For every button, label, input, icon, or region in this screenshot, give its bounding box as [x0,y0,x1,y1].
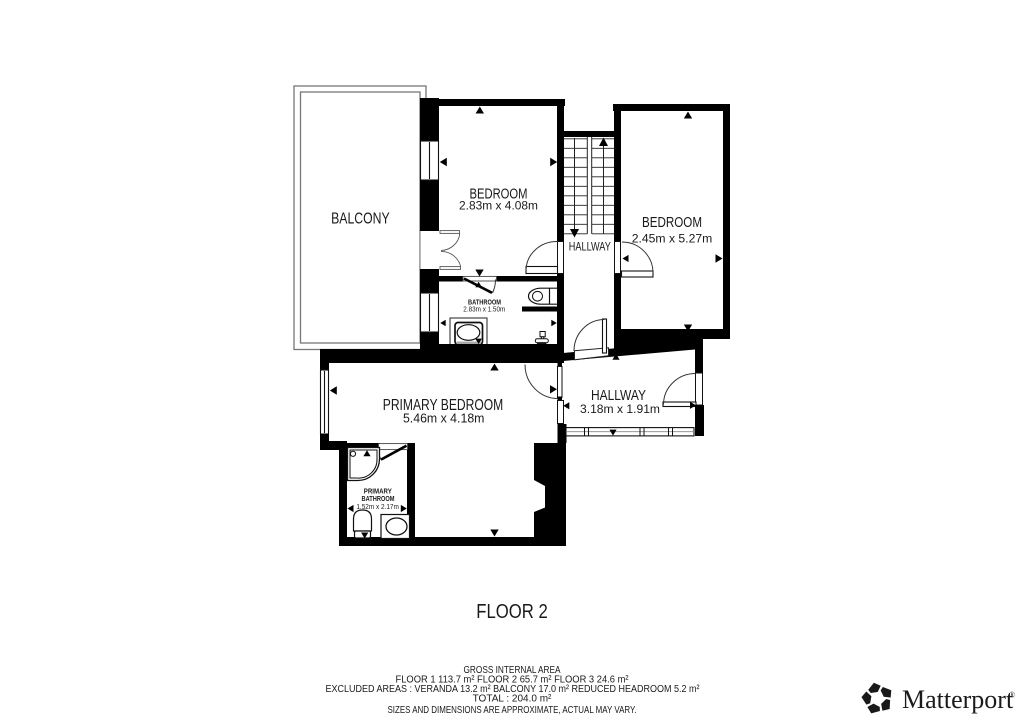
svg-text:Matterport: Matterport [902,685,1014,714]
svg-text:BATHROOM: BATHROOM [362,494,395,503]
svg-text:5.46m x 4.18m: 5.46m x 4.18m [403,412,485,426]
svg-text:1.52m x 2.17m: 1.52m x 2.17m [356,504,399,511]
svg-text:TOTAL : 204.0 m²: TOTAL : 204.0 m² [473,694,552,705]
svg-text:FLOOR 2: FLOOR 2 [476,601,548,623]
svg-text:2.83m x 4.08m: 2.83m x 4.08m [459,199,538,213]
svg-text:2.83m x 1.50m: 2.83m x 1.50m [463,306,505,313]
svg-text:HALLWAY: HALLWAY [569,239,611,253]
svg-text:BALCONY: BALCONY [331,211,390,228]
svg-text:SIZES AND DIMENSIONS ARE APPRO: SIZES AND DIMENSIONS ARE APPROXIMATE, AC… [388,705,637,716]
svg-text:BEDROOM: BEDROOM [642,215,702,231]
svg-text:3.18m x 1.91m: 3.18m x 1.91m [580,402,660,416]
svg-text:2.45m x 5.27m: 2.45m x 5.27m [632,232,713,246]
svg-text:®: ® [1009,691,1015,700]
svg-text:BATHROOM: BATHROOM [468,297,501,306]
